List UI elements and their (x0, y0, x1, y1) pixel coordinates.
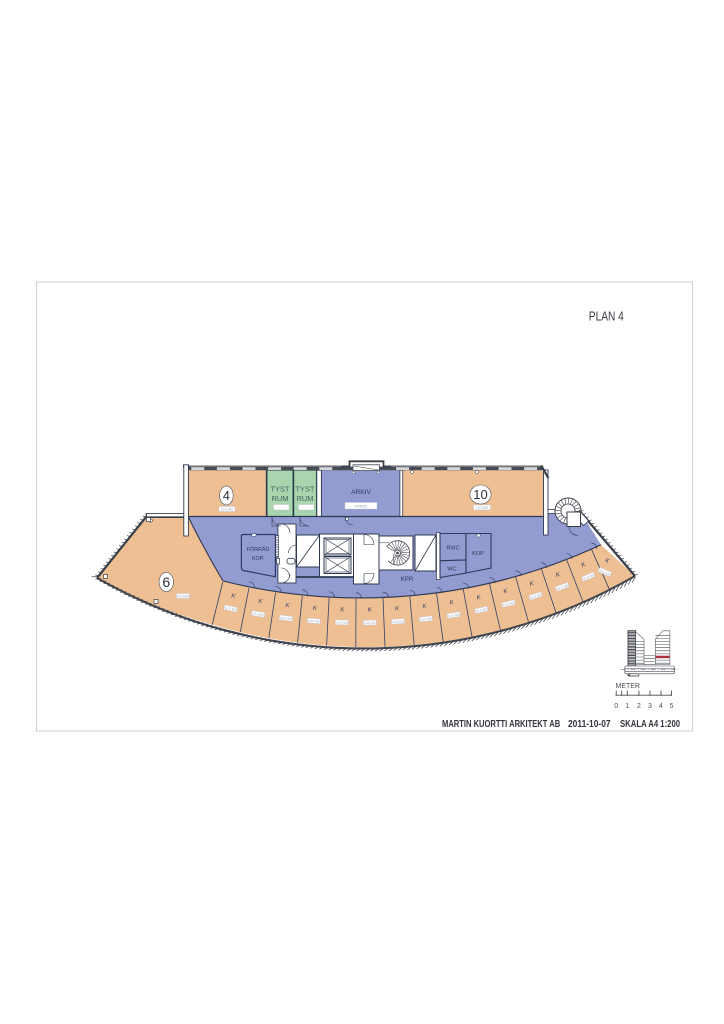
svg-text:10.5 M2: 10.5 M2 (364, 621, 376, 625)
svg-text:0: 0 (614, 703, 618, 710)
svg-text:4: 4 (223, 489, 230, 503)
svg-text:METER: METER (616, 683, 641, 690)
svg-text:KPR: KPR (401, 576, 414, 583)
svg-text:RUM: RUM (272, 494, 289, 503)
svg-text:WC: WC (447, 567, 456, 573)
svg-text:10: 10 (473, 487, 487, 502)
svg-text:10.5 M2: 10.5 M2 (336, 621, 348, 625)
svg-text:4: 4 (659, 703, 663, 710)
svg-text:10.5 M2: 10.5 M2 (476, 506, 488, 510)
svg-text:TYST: TYST (296, 485, 315, 494)
svg-text:3: 3 (648, 703, 652, 710)
svg-text:2: 2 (637, 703, 641, 710)
svg-text:ARKIV: ARKIV (351, 489, 371, 496)
svg-text:PLAN 4: PLAN 4 (589, 309, 624, 324)
svg-text:1: 1 (625, 703, 629, 710)
svg-text:KOP.: KOP. (252, 556, 264, 562)
svg-text:5: 5 (670, 703, 674, 710)
svg-text:10.5 M2: 10.5 M2 (392, 619, 404, 624)
svg-text:10.5 M2: 10.5 M2 (177, 594, 189, 598)
svg-text:TYST: TYST (271, 485, 290, 494)
svg-text:2011-10-07: 2011-10-07 (568, 718, 611, 729)
svg-text:6: 6 (162, 574, 170, 590)
svg-text:SKALA A4 1:200: SKALA A4 1:200 (620, 718, 680, 729)
svg-text:FÖRRÅD: FÖRRÅD (247, 546, 270, 553)
svg-text:MARTIN KUORTTI ARKITEKT AB: MARTIN KUORTTI ARKITEKT AB (442, 718, 560, 729)
svg-text:RWC: RWC (446, 546, 459, 552)
svg-text:KOP: KOP (472, 551, 484, 557)
svg-text:FRM33: FRM33 (355, 505, 367, 509)
svg-text:10.5 M2: 10.5 M2 (221, 507, 233, 511)
svg-text:RUM: RUM (297, 494, 314, 503)
